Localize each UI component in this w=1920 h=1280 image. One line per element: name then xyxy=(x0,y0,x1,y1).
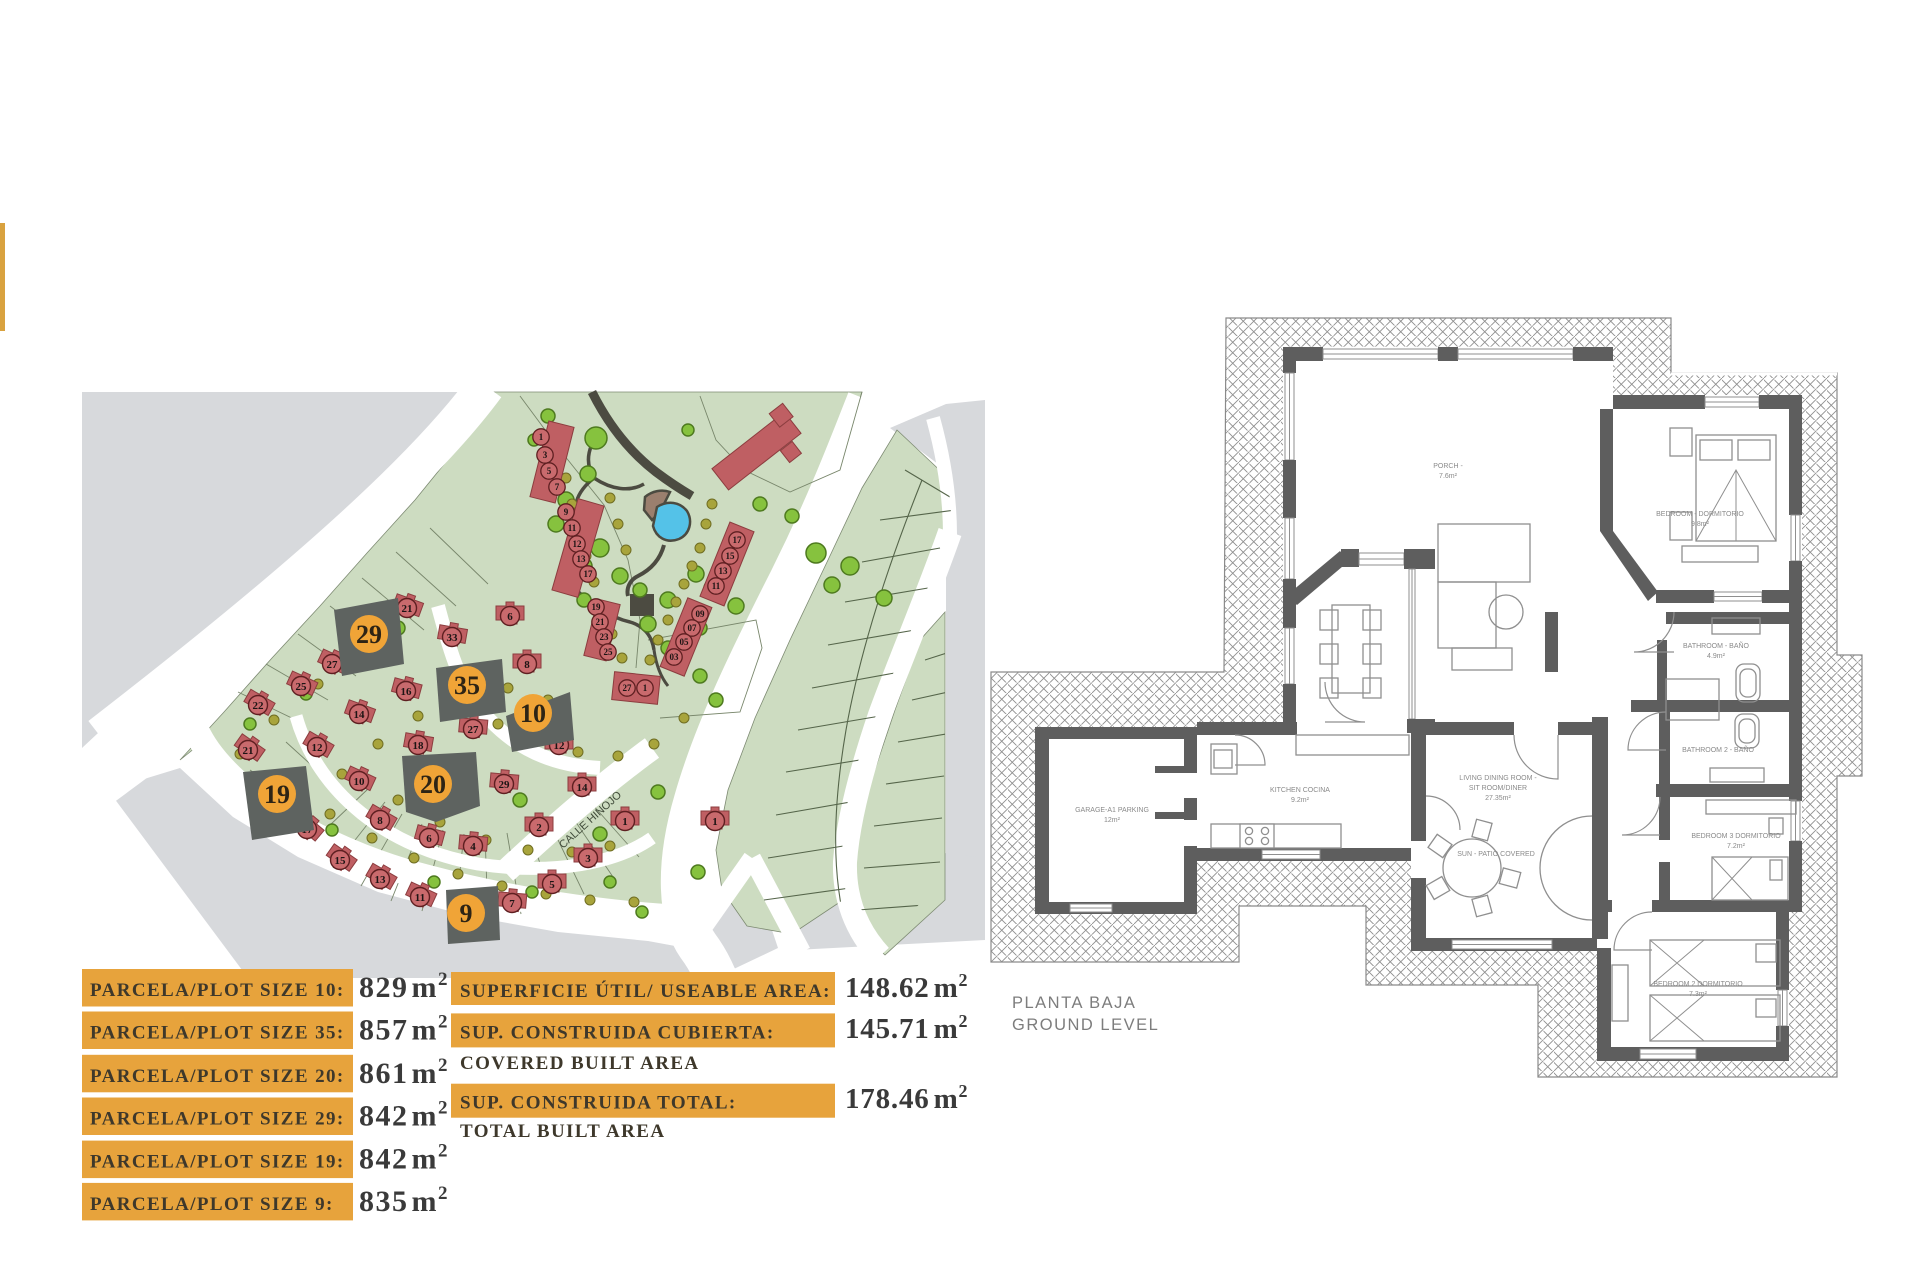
svg-text:11: 11 xyxy=(712,581,721,591)
svg-text:BATHROOM 2 - BAÑO: BATHROOM 2 - BAÑO xyxy=(1682,745,1754,754)
svg-text:7: 7 xyxy=(555,482,560,492)
svg-text:BEDROOM 3 DORMITORIO: BEDROOM 3 DORMITORIO xyxy=(1691,833,1781,840)
svg-text:857m2: 857m2 xyxy=(359,1012,449,1047)
svg-text:5: 5 xyxy=(549,879,555,891)
svg-text:SUPERFICIE ÚTIL/ USEABLE AREA:: SUPERFICIE ÚTIL/ USEABLE AREA: xyxy=(460,980,831,1002)
svg-text:BATHROOM - BAÑO: BATHROOM - BAÑO xyxy=(1683,641,1750,650)
svg-text:22: 22 xyxy=(253,700,265,712)
svg-text:27: 27 xyxy=(327,659,339,671)
svg-text:842m2: 842m2 xyxy=(359,1098,449,1133)
svg-text:19: 19 xyxy=(592,602,602,612)
svg-text:23: 23 xyxy=(600,632,610,642)
svg-text:21: 21 xyxy=(596,617,606,627)
svg-text:27.35m²: 27.35m² xyxy=(1485,795,1511,802)
svg-text:4: 4 xyxy=(470,841,476,853)
svg-text:7.2m²: 7.2m² xyxy=(1727,843,1746,850)
svg-text:SUP. CONSTRUIDA TOTAL:: SUP. CONSTRUIDA TOTAL: xyxy=(460,1093,737,1114)
svg-text:178.46m2: 178.46m2 xyxy=(845,1081,968,1115)
svg-text:27: 27 xyxy=(623,683,633,693)
svg-text:15: 15 xyxy=(726,551,736,561)
svg-text:SIT ROOM/DINER: SIT ROOM/DINER xyxy=(1469,785,1527,792)
svg-text:25: 25 xyxy=(604,647,614,657)
svg-text:PARCELA/PLOT SIZE 29:: PARCELA/PLOT SIZE 29: xyxy=(90,1109,345,1130)
svg-text:07: 07 xyxy=(688,623,698,633)
svg-text:145.71m2: 145.71m2 xyxy=(845,1011,968,1045)
svg-text:27: 27 xyxy=(468,724,480,736)
svg-text:7.3m²: 7.3m² xyxy=(1689,991,1708,998)
svg-text:1: 1 xyxy=(622,816,628,828)
svg-text:12m²: 12m² xyxy=(1104,817,1121,824)
svg-text:PLANTA BAJA: PLANTA BAJA xyxy=(1012,994,1136,1012)
svg-text:11: 11 xyxy=(568,523,577,533)
svg-text:20: 20 xyxy=(420,770,446,799)
svg-text:9: 9 xyxy=(564,507,569,517)
svg-text:12: 12 xyxy=(573,539,583,549)
svg-text:16: 16 xyxy=(401,686,413,698)
svg-text:9.2m²: 9.2m² xyxy=(1291,797,1310,804)
svg-text:13: 13 xyxy=(375,874,387,886)
svg-text:COVERED BUILT AREA: COVERED BUILT AREA xyxy=(460,1053,700,1074)
svg-text:PORCH -: PORCH - xyxy=(1433,463,1463,470)
svg-text:7: 7 xyxy=(509,898,515,910)
svg-text:GARAGE-A1 PARKING: GARAGE-A1 PARKING xyxy=(1075,807,1149,814)
svg-text:21: 21 xyxy=(402,603,413,615)
svg-text:13: 13 xyxy=(577,554,587,564)
svg-text:SUN - PATIO COVERED: SUN - PATIO COVERED xyxy=(1457,851,1535,858)
svg-text:842m2: 842m2 xyxy=(359,1141,449,1176)
svg-text:KITCHEN COCINA: KITCHEN COCINA xyxy=(1270,787,1330,794)
svg-text:10: 10 xyxy=(520,699,546,728)
svg-text:3: 3 xyxy=(543,450,548,460)
svg-text:8: 8 xyxy=(524,659,530,671)
svg-text:14: 14 xyxy=(577,782,589,794)
svg-text:03: 03 xyxy=(670,652,680,662)
svg-text:14: 14 xyxy=(354,709,366,721)
svg-text:29: 29 xyxy=(499,779,511,791)
svg-text:861m2: 861m2 xyxy=(359,1055,449,1090)
svg-text:148.62m2: 148.62m2 xyxy=(845,970,968,1004)
svg-text:5: 5 xyxy=(547,466,552,476)
svg-text:9.8m²: 9.8m² xyxy=(1691,521,1710,528)
svg-text:9: 9 xyxy=(460,899,473,928)
svg-text:17: 17 xyxy=(584,569,594,579)
svg-text:35: 35 xyxy=(454,671,480,700)
svg-text:BEDROOM - DORMITORIO: BEDROOM - DORMITORIO xyxy=(1656,511,1744,518)
svg-text:TOTAL BUILT AREA: TOTAL BUILT AREA xyxy=(460,1121,665,1142)
svg-text:05: 05 xyxy=(680,637,690,647)
svg-text:BEDROOM 2 DORMITORIO: BEDROOM 2 DORMITORIO xyxy=(1653,981,1743,988)
svg-text:835m2: 835m2 xyxy=(359,1183,449,1218)
svg-text:18: 18 xyxy=(413,740,425,752)
svg-text:09: 09 xyxy=(696,609,706,619)
svg-text:17: 17 xyxy=(733,535,743,545)
svg-text:2: 2 xyxy=(536,822,542,834)
svg-text:1: 1 xyxy=(712,816,718,828)
svg-text:PARCELA/PLOT SIZE 10:: PARCELA/PLOT SIZE 10: xyxy=(90,980,345,1001)
svg-text:PARCELA/PLOT SIZE 9:: PARCELA/PLOT SIZE 9: xyxy=(90,1194,334,1215)
svg-text:1: 1 xyxy=(539,432,544,442)
svg-text:21: 21 xyxy=(243,745,254,757)
svg-text:3: 3 xyxy=(585,853,591,865)
svg-text:LIVING DINING ROOM -: LIVING DINING ROOM - xyxy=(1459,775,1537,782)
svg-text:6: 6 xyxy=(507,611,513,623)
svg-text:PARCELA/PLOT SIZE 35:: PARCELA/PLOT SIZE 35: xyxy=(90,1023,345,1044)
svg-text:29: 29 xyxy=(356,620,382,649)
svg-text:6: 6 xyxy=(426,833,432,845)
svg-text:SUP. CONSTRUIDA CUBIERTA:: SUP. CONSTRUIDA CUBIERTA: xyxy=(460,1022,775,1043)
svg-text:11: 11 xyxy=(415,892,425,904)
svg-text:33: 33 xyxy=(447,632,459,644)
svg-text:10: 10 xyxy=(354,776,366,788)
svg-text:PARCELA/PLOT SIZE 20:: PARCELA/PLOT SIZE 20: xyxy=(90,1066,345,1087)
svg-text:7.6m²: 7.6m² xyxy=(1439,473,1458,480)
svg-text:829m2: 829m2 xyxy=(359,969,449,1004)
svg-text:13: 13 xyxy=(719,566,729,576)
svg-text:19: 19 xyxy=(264,780,290,809)
svg-text:PARCELA/PLOT SIZE 19:: PARCELA/PLOT SIZE 19: xyxy=(90,1152,345,1173)
svg-text:GROUND LEVEL: GROUND LEVEL xyxy=(1012,1016,1159,1034)
svg-text:15: 15 xyxy=(335,855,347,867)
svg-text:12: 12 xyxy=(312,742,324,754)
svg-text:4.9m²: 4.9m² xyxy=(1707,653,1726,660)
svg-text:1: 1 xyxy=(643,683,648,693)
svg-text:8: 8 xyxy=(377,815,383,827)
svg-text:25: 25 xyxy=(296,681,308,693)
